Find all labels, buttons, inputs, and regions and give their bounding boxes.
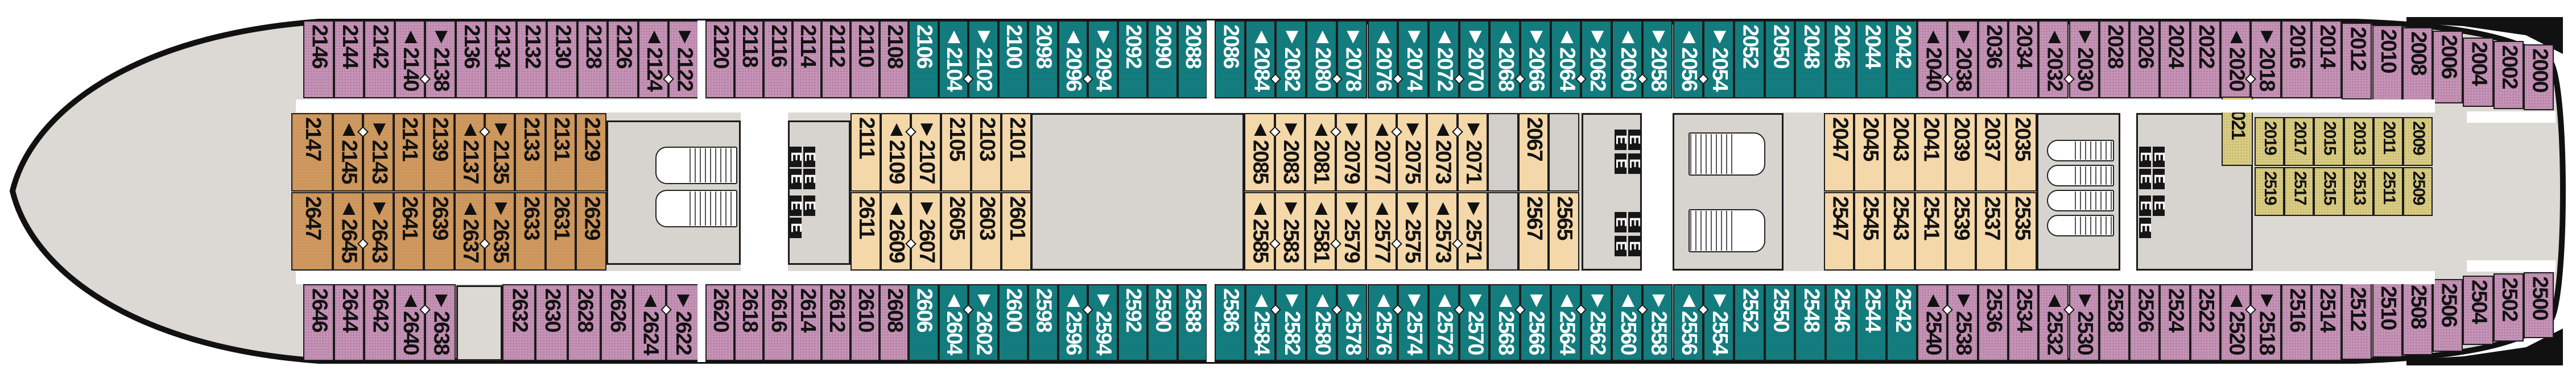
- stair-treads: [1690, 134, 1733, 174]
- cabin-2522[interactable]: 2522: [2190, 284, 2220, 361]
- cabin-2141[interactable]: 2141: [394, 113, 424, 192]
- cabin-2548[interactable]: 2548: [1795, 284, 1826, 361]
- cabin-2092[interactable]: 2092: [1118, 20, 1148, 98]
- cabin-2072[interactable]: ▲2072: [1429, 20, 1459, 98]
- cabin-2622[interactable]: ▼2622: [666, 284, 699, 361]
- cabin-2106[interactable]: 2106: [909, 20, 939, 98]
- cabin-2640[interactable]: ▲2640: [395, 284, 426, 361]
- cabin-2565[interactable]: 2565: [1549, 192, 1579, 271]
- elevator: E: [803, 169, 815, 189]
- cabin-2607[interactable]: ▼2607: [911, 192, 941, 271]
- cabin-2004[interactable]: 2004: [2463, 38, 2493, 107]
- elevator: E: [1628, 212, 1640, 232]
- cabin-2646[interactable]: 2646: [303, 284, 334, 361]
- cabin-2035[interactable]: 2035: [2006, 113, 2036, 192]
- cabin-2145[interactable]: ▲2145: [333, 113, 363, 192]
- cabin-2135[interactable]: ▼2135: [485, 113, 515, 192]
- cabin-2002[interactable]: 2002: [2494, 41, 2524, 109]
- cabin-2107[interactable]: ▼2107: [911, 113, 941, 192]
- cabin-2566[interactable]: ▼2566: [1520, 284, 1551, 361]
- cabin-2128[interactable]: 2128: [577, 20, 608, 98]
- cabin-2577[interactable]: ▲2577: [1366, 192, 1397, 271]
- cabin-2103[interactable]: 2103: [971, 113, 1001, 192]
- cabin-2620[interactable]: 2620: [705, 284, 734, 361]
- cabin-2512[interactable]: 2512: [2342, 283, 2372, 360]
- cabin-2129[interactable]: 2129: [576, 113, 606, 192]
- corridor: [697, 20, 705, 100]
- cabin-2014[interactable]: 2014: [2311, 20, 2342, 98]
- cabin-2538[interactable]: ▼2538: [1947, 284, 1978, 361]
- cabin-2042[interactable]: 2042: [1886, 20, 1917, 98]
- elevator: E: [2153, 147, 2165, 167]
- cabin-2546[interactable]: 2546: [1826, 284, 1856, 361]
- cabin-2046[interactable]: 2046: [1826, 20, 1856, 98]
- elevator: E: [803, 147, 815, 167]
- cabin-2124[interactable]: ▲2124: [638, 20, 669, 98]
- cabin-2567[interactable]: 2567: [1518, 192, 1549, 271]
- elevator: E: [1628, 153, 1640, 174]
- cabin-2635[interactable]: ▼2635: [485, 192, 515, 271]
- cabin-2542[interactable]: 2542: [1886, 284, 1917, 361]
- cabin-2052[interactable]: 2052: [1734, 20, 1765, 98]
- elevator: E: [790, 169, 802, 189]
- cabin-2581[interactable]: ▲2581: [1305, 192, 1336, 271]
- cabin-2524[interactable]: 2524: [2160, 284, 2190, 361]
- cabin-2131[interactable]: 2131: [546, 113, 576, 192]
- corridor: [296, 99, 2435, 113]
- cabin-2508[interactable]: 2508: [2402, 281, 2433, 355]
- deck-recess: [456, 285, 502, 361]
- cabin-2133[interactable]: 2133: [515, 113, 545, 192]
- cabin-2528[interactable]: 2528: [2099, 284, 2129, 361]
- cabin-2024[interactable]: 2024: [2160, 20, 2190, 98]
- cabin-2146[interactable]: 2146: [303, 20, 334, 98]
- elevator: E: [1615, 236, 1626, 256]
- cabin-2043[interactable]: 2043: [1885, 113, 1915, 192]
- cabin-2583[interactable]: ▼2583: [1275, 192, 1306, 271]
- cabin-2038[interactable]: ▼2038: [1947, 20, 1978, 98]
- cabin-2626[interactable]: 2626: [601, 284, 634, 361]
- staircase: [1689, 132, 1765, 176]
- cabin-2136[interactable]: 2136: [456, 20, 486, 98]
- cabin-2644[interactable]: 2644: [334, 284, 365, 361]
- cabin-2104[interactable]: ▲2104: [939, 20, 969, 98]
- cabin-2579[interactable]: ▼2579: [1336, 192, 1367, 271]
- corridor: [1207, 284, 1215, 362]
- elevator: E: [1628, 130, 1640, 150]
- cabin-2535[interactable]: 2535: [2006, 192, 2036, 271]
- cabin-2086[interactable]: 2086: [1215, 20, 1245, 98]
- cabin-2578[interactable]: ▼2578: [1337, 284, 1368, 361]
- cabin-2039[interactable]: 2039: [1946, 113, 1976, 192]
- cabin-2030[interactable]: ▼2030: [2069, 20, 2099, 98]
- service-block: [1031, 113, 1244, 271]
- stair-treads: [690, 192, 736, 226]
- cabin-2638[interactable]: ▼2638: [425, 284, 456, 361]
- cabin-2558[interactable]: ▼2558: [1642, 284, 1673, 361]
- cabin-2572[interactable]: ▲2572: [1429, 284, 1459, 361]
- cabin-2540[interactable]: ▲2540: [1917, 284, 1947, 361]
- cabin-2514[interactable]: 2514: [2311, 284, 2342, 361]
- cabin-2076[interactable]: ▲2076: [1368, 20, 1398, 98]
- cabin-2130[interactable]: 2130: [547, 20, 577, 98]
- cabin-2109[interactable]: ▲2109: [881, 113, 911, 192]
- cabin-2628[interactable]: 2628: [568, 284, 601, 361]
- cabin-2629[interactable]: 2629: [576, 192, 606, 271]
- cabin-2518[interactable]: ▼2518: [2251, 284, 2281, 361]
- elevator: E: [2153, 195, 2165, 216]
- cabin-2504[interactable]: 2504: [2463, 276, 2493, 345]
- cabin-2044[interactable]: 2044: [1856, 20, 1887, 98]
- cabin-2511[interactable]: 2511: [2373, 167, 2403, 216]
- cabin-2058[interactable]: ▼2058: [1642, 20, 1673, 98]
- cabin-2614[interactable]: 2614: [792, 284, 821, 361]
- cabin-2132[interactable]: 2132: [517, 20, 547, 98]
- cabin-2071[interactable]: ▼2071: [1458, 113, 1488, 192]
- cabin-2517[interactable]: 2517: [2284, 167, 2314, 216]
- cabin-2616[interactable]: 2616: [763, 284, 792, 361]
- cabin-2506[interactable]: 2506: [2433, 279, 2463, 352]
- cabin-2082[interactable]: ▼2082: [1275, 20, 1306, 98]
- cabin-2510[interactable]: 2510: [2372, 282, 2402, 357]
- cabin-2074[interactable]: ▼2074: [1398, 20, 1429, 98]
- cabin-2102[interactable]: ▼2102: [968, 20, 998, 98]
- cabin-2000[interactable]: 2000: [2524, 44, 2554, 110]
- cabin-2012[interactable]: 2012: [2342, 23, 2372, 99]
- cabin-2571[interactable]: ▼2571: [1458, 192, 1488, 271]
- cabin-2618[interactable]: 2618: [734, 284, 763, 361]
- cabin-2582[interactable]: ▼2582: [1275, 284, 1306, 361]
- corridor: [2467, 260, 2556, 272]
- cabin-2022[interactable]: 2022: [2190, 20, 2220, 98]
- cabin-2083[interactable]: ▼2083: [1275, 113, 1306, 192]
- elevator: E: [790, 195, 802, 216]
- cabin-2631[interactable]: 2631: [546, 192, 576, 271]
- elevator: E: [2139, 147, 2151, 167]
- cabin-2116[interactable]: 2116: [763, 20, 792, 98]
- cabin-2098[interactable]: 2098: [1028, 20, 1058, 98]
- cabin-2500[interactable]: 2500: [2524, 272, 2554, 338]
- cabin-2545[interactable]: 2545: [1854, 192, 1884, 271]
- corridor: [2467, 111, 2556, 123]
- cabin-2604[interactable]: ▲2604: [939, 284, 969, 361]
- cabin-2568[interactable]: ▲2568: [1489, 284, 1520, 361]
- cabin-2110[interactable]: 2110: [851, 20, 880, 98]
- elevator: E: [1615, 212, 1626, 232]
- cabin-2142[interactable]: 2142: [364, 20, 395, 98]
- cabin-2037[interactable]: 2037: [1976, 113, 2006, 192]
- cabin-2641[interactable]: 2641: [394, 192, 424, 271]
- stair-treads: [690, 148, 736, 182]
- cabin-2138[interactable]: ▼2138: [425, 20, 456, 98]
- cabin-2575[interactable]: ▼2575: [1397, 192, 1427, 271]
- elevator: E: [1628, 236, 1640, 256]
- cabin-2147[interactable]: 2147: [291, 113, 333, 192]
- cabin-2534[interactable]: 2534: [2008, 284, 2038, 361]
- cabin-2584[interactable]: ▲2584: [1245, 284, 1276, 361]
- cabin-2624[interactable]: ▲2624: [633, 284, 666, 361]
- cabin-2610[interactable]: 2610: [851, 284, 880, 361]
- cabin-2047[interactable]: 2047: [1824, 113, 1854, 192]
- cabin-2100[interactable]: 2100: [998, 20, 1029, 98]
- cabin-2094[interactable]: ▼2094: [1088, 20, 1118, 98]
- cabin-2114[interactable]: 2114: [792, 20, 821, 98]
- cabin-2639[interactable]: 2639: [424, 192, 454, 271]
- cabin-2519[interactable]: 2519: [2255, 167, 2284, 216]
- gray-cabin: [1549, 113, 1579, 192]
- cabin-2060[interactable]: ▲2060: [1612, 20, 1642, 98]
- cabin-2080[interactable]: ▲2080: [1306, 20, 1337, 98]
- corridor: [697, 284, 705, 362]
- staircase: [655, 147, 737, 184]
- cabin-2054[interactable]: ▼2054: [1703, 20, 1734, 98]
- cabin-2592[interactable]: 2592: [1118, 284, 1148, 361]
- cabin-2541[interactable]: 2541: [1915, 192, 1945, 271]
- cabin-2612[interactable]: 2612: [821, 284, 851, 361]
- cabin-2539[interactable]: 2539: [1946, 192, 1976, 271]
- cabin-2543[interactable]: 2543: [1885, 192, 1915, 271]
- elevator: E: [790, 218, 802, 238]
- cabin-2048[interactable]: 2048: [1795, 20, 1826, 98]
- cabin-2608[interactable]: 2608: [880, 284, 909, 361]
- cabin-2596[interactable]: ▲2596: [1058, 284, 1088, 361]
- cabin-2554[interactable]: ▼2554: [1703, 284, 1734, 361]
- cabin-2050[interactable]: 2050: [1765, 20, 1795, 98]
- cabin-2034[interactable]: 2034: [2008, 20, 2038, 98]
- cabin-2144[interactable]: 2144: [334, 20, 365, 98]
- cabin-2009[interactable]: 2009: [2403, 117, 2433, 166]
- gray-cabin: [1488, 113, 1518, 192]
- elevator: E: [790, 147, 802, 167]
- cabin-2536[interactable]: 2536: [1978, 284, 2008, 361]
- cabin-2062[interactable]: ▼2062: [1581, 20, 1612, 98]
- corridor: [1207, 20, 1215, 100]
- forward-elevator-block: [788, 120, 851, 265]
- cabin-2633[interactable]: 2633: [515, 192, 545, 271]
- cabin-2096[interactable]: ▲2096: [1058, 20, 1088, 98]
- cabin-2537[interactable]: 2537: [1976, 192, 2006, 271]
- elevator: E: [2139, 218, 2151, 238]
- cabin-2066[interactable]: ▼2066: [1520, 20, 1551, 98]
- cabin-2544[interactable]: 2544: [1856, 284, 1887, 361]
- cabin-2090[interactable]: 2090: [1147, 20, 1178, 98]
- stair-treads: [1690, 211, 1733, 251]
- cabin-2532[interactable]: ▲2532: [2038, 284, 2069, 361]
- cabin-2112[interactable]: 2112: [821, 20, 851, 98]
- cabin-2601[interactable]: 2601: [1001, 192, 1031, 271]
- cabin-2070[interactable]: ▼2070: [1459, 20, 1490, 98]
- cabin-2085[interactable]: ▲2085: [1244, 113, 1275, 192]
- cabin-2134[interactable]: 2134: [486, 20, 517, 98]
- cabin-2603[interactable]: 2603: [971, 192, 1001, 271]
- cabin-2550[interactable]: 2550: [1765, 284, 1795, 361]
- cabin-2122[interactable]: ▼2122: [668, 20, 699, 98]
- cabin-2520[interactable]: ▲2520: [2220, 284, 2251, 361]
- cabin-2509[interactable]: 2509: [2403, 167, 2433, 216]
- cabin-2081[interactable]: ▲2081: [1305, 113, 1336, 192]
- corridor: [296, 271, 2435, 284]
- cabin-2143[interactable]: ▼2143: [363, 113, 393, 192]
- cabin-2594[interactable]: ▼2594: [1088, 284, 1118, 361]
- cabin-2137[interactable]: ▲2137: [455, 113, 485, 192]
- cabin-2016[interactable]: 2016: [2281, 20, 2311, 98]
- cabin-2084[interactable]: ▲2084: [1245, 20, 1276, 98]
- cabin-2586[interactable]: 2586: [1215, 284, 1245, 361]
- cabin-2120[interactable]: 2120: [705, 20, 734, 98]
- cabin-2611[interactable]: 2611: [851, 192, 881, 271]
- cabin-2590[interactable]: 2590: [1147, 284, 1178, 361]
- cabin-2573[interactable]: ▲2573: [1427, 192, 1458, 271]
- cabin-2562[interactable]: ▼2562: [1581, 284, 1612, 361]
- cabin-2645[interactable]: ▲2645: [333, 192, 363, 271]
- cabin-2609[interactable]: ▲2609: [881, 192, 911, 271]
- cabin-2530[interactable]: ▼2530: [2069, 284, 2099, 361]
- cabin-2647[interactable]: 2647: [291, 192, 333, 271]
- cabin-2515[interactable]: 2515: [2314, 167, 2343, 216]
- cabin-2600[interactable]: 2600: [998, 284, 1029, 361]
- cabin-2602[interactable]: ▼2602: [968, 284, 998, 361]
- cabin-2126[interactable]: 2126: [608, 20, 638, 98]
- cabin-2139[interactable]: 2139: [424, 113, 454, 192]
- cabin-2570[interactable]: ▼2570: [1459, 284, 1490, 361]
- stair-treads: [2075, 192, 2112, 210]
- cabin-2140[interactable]: ▲2140: [395, 20, 426, 98]
- deck-plan: EEEEEEEEEEEEEEEEEEEEEE214621442142▲2140▼…: [0, 0, 2576, 391]
- stair-treads: [2075, 167, 2112, 185]
- cabin-2556[interactable]: ▲2556: [1673, 284, 1704, 361]
- elevator: E: [1615, 130, 1626, 150]
- cabin-2111[interactable]: 2111: [851, 113, 881, 192]
- cabin-2064[interactable]: ▲2064: [1551, 20, 1582, 98]
- elevator: E: [2139, 169, 2151, 189]
- cabin-2088[interactable]: 2088: [1178, 20, 1208, 98]
- cabin-2018[interactable]: ▼2018: [2251, 20, 2281, 98]
- gray-cabin: [1488, 192, 1518, 271]
- corridor: [741, 99, 788, 284]
- cabin-2045[interactable]: 2045: [1854, 113, 1884, 192]
- cabin-2079[interactable]: ▼2079: [1336, 113, 1367, 192]
- cabin-2008[interactable]: 2008: [2402, 27, 2433, 102]
- elevator: E: [2153, 169, 2165, 189]
- cabin-2643[interactable]: ▼2643: [363, 192, 393, 271]
- cabin-2564[interactable]: ▲2564: [1551, 284, 1582, 361]
- cabin-2585[interactable]: ▲2585: [1244, 192, 1275, 271]
- corridor: [2120, 99, 2136, 284]
- cabin-2056[interactable]: ▲2056: [1673, 20, 1704, 98]
- cabin-2073[interactable]: ▲2073: [1427, 113, 1458, 192]
- cabin-2576[interactable]: ▲2576: [1368, 284, 1398, 361]
- cabin-2011[interactable]: 2011: [2373, 117, 2403, 166]
- staircase: [2047, 215, 2114, 236]
- cabin-2101[interactable]: 2101: [1001, 113, 1031, 192]
- cabin-2068[interactable]: ▲2068: [1489, 20, 1520, 98]
- cabin-2598[interactable]: 2598: [1028, 284, 1058, 361]
- cabin-2637[interactable]: ▲2637: [455, 192, 485, 271]
- cabin-2630[interactable]: 2630: [535, 284, 568, 361]
- corridor: [1642, 99, 1673, 284]
- cabin-2560[interactable]: ▲2560: [1612, 284, 1642, 361]
- cabin-2605[interactable]: 2605: [941, 192, 971, 271]
- stair-treads: [2075, 142, 2112, 160]
- cabin-2075[interactable]: ▼2075: [1397, 113, 1427, 192]
- staircase: [655, 190, 737, 227]
- cabin-2020[interactable]: ▲2020: [2220, 20, 2251, 98]
- cabin-2019[interactable]: 2019: [2255, 117, 2284, 166]
- cabin-2041[interactable]: 2041: [1915, 113, 1945, 192]
- elevator: E: [2139, 195, 2151, 216]
- cabin-2118[interactable]: 2118: [734, 20, 763, 98]
- cabin-2026[interactable]: 2026: [2129, 20, 2160, 98]
- cabin-2028[interactable]: 2028: [2099, 20, 2129, 98]
- staircase: [1689, 209, 1765, 252]
- cabin-2552[interactable]: 2552: [1734, 284, 1765, 361]
- cabin-2574[interactable]: ▼2574: [1398, 284, 1429, 361]
- cabin-2632[interactable]: 2632: [502, 284, 535, 361]
- staircase: [2047, 190, 2114, 211]
- cabin-2015[interactable]: 2015: [2314, 117, 2343, 166]
- cabin-2588[interactable]: 2588: [1178, 284, 1208, 361]
- cabin-2017[interactable]: 2017: [2284, 117, 2314, 166]
- cabin-2513[interactable]: 2513: [2344, 167, 2373, 216]
- cabin-2013[interactable]: 2013: [2344, 117, 2373, 166]
- cabin-2526[interactable]: 2526: [2129, 284, 2160, 361]
- elevator: E: [803, 195, 815, 216]
- cabin-2040[interactable]: ▲2040: [1917, 20, 1947, 98]
- cabin-2547[interactable]: 2547: [1824, 192, 1854, 271]
- cabin-2036[interactable]: 2036: [1978, 20, 2008, 98]
- staircase: [2047, 140, 2114, 161]
- cabin-2516[interactable]: 2516: [2281, 284, 2311, 361]
- elevator: E: [1615, 153, 1626, 174]
- cabin-2006[interactable]: 2006: [2433, 31, 2463, 103]
- cabin-2077[interactable]: ▲2077: [1366, 113, 1397, 192]
- cabin-2502[interactable]: 2502: [2494, 273, 2524, 342]
- cabin-2105[interactable]: 2105: [941, 113, 971, 192]
- cabin-2108[interactable]: 2108: [880, 20, 909, 98]
- cabin-2078[interactable]: ▼2078: [1337, 20, 1368, 98]
- cabin-2580[interactable]: ▲2580: [1306, 284, 1337, 361]
- stair-treads: [2075, 217, 2112, 235]
- cabin-2606[interactable]: 2606: [909, 284, 939, 361]
- staircase: [2047, 165, 2114, 186]
- cabin-2067[interactable]: 2067: [1518, 113, 1549, 192]
- cabin-2010[interactable]: 2010: [2372, 25, 2402, 101]
- cabin-2032[interactable]: ▲2032: [2038, 20, 2069, 98]
- cabin-2642[interactable]: 2642: [364, 284, 395, 361]
